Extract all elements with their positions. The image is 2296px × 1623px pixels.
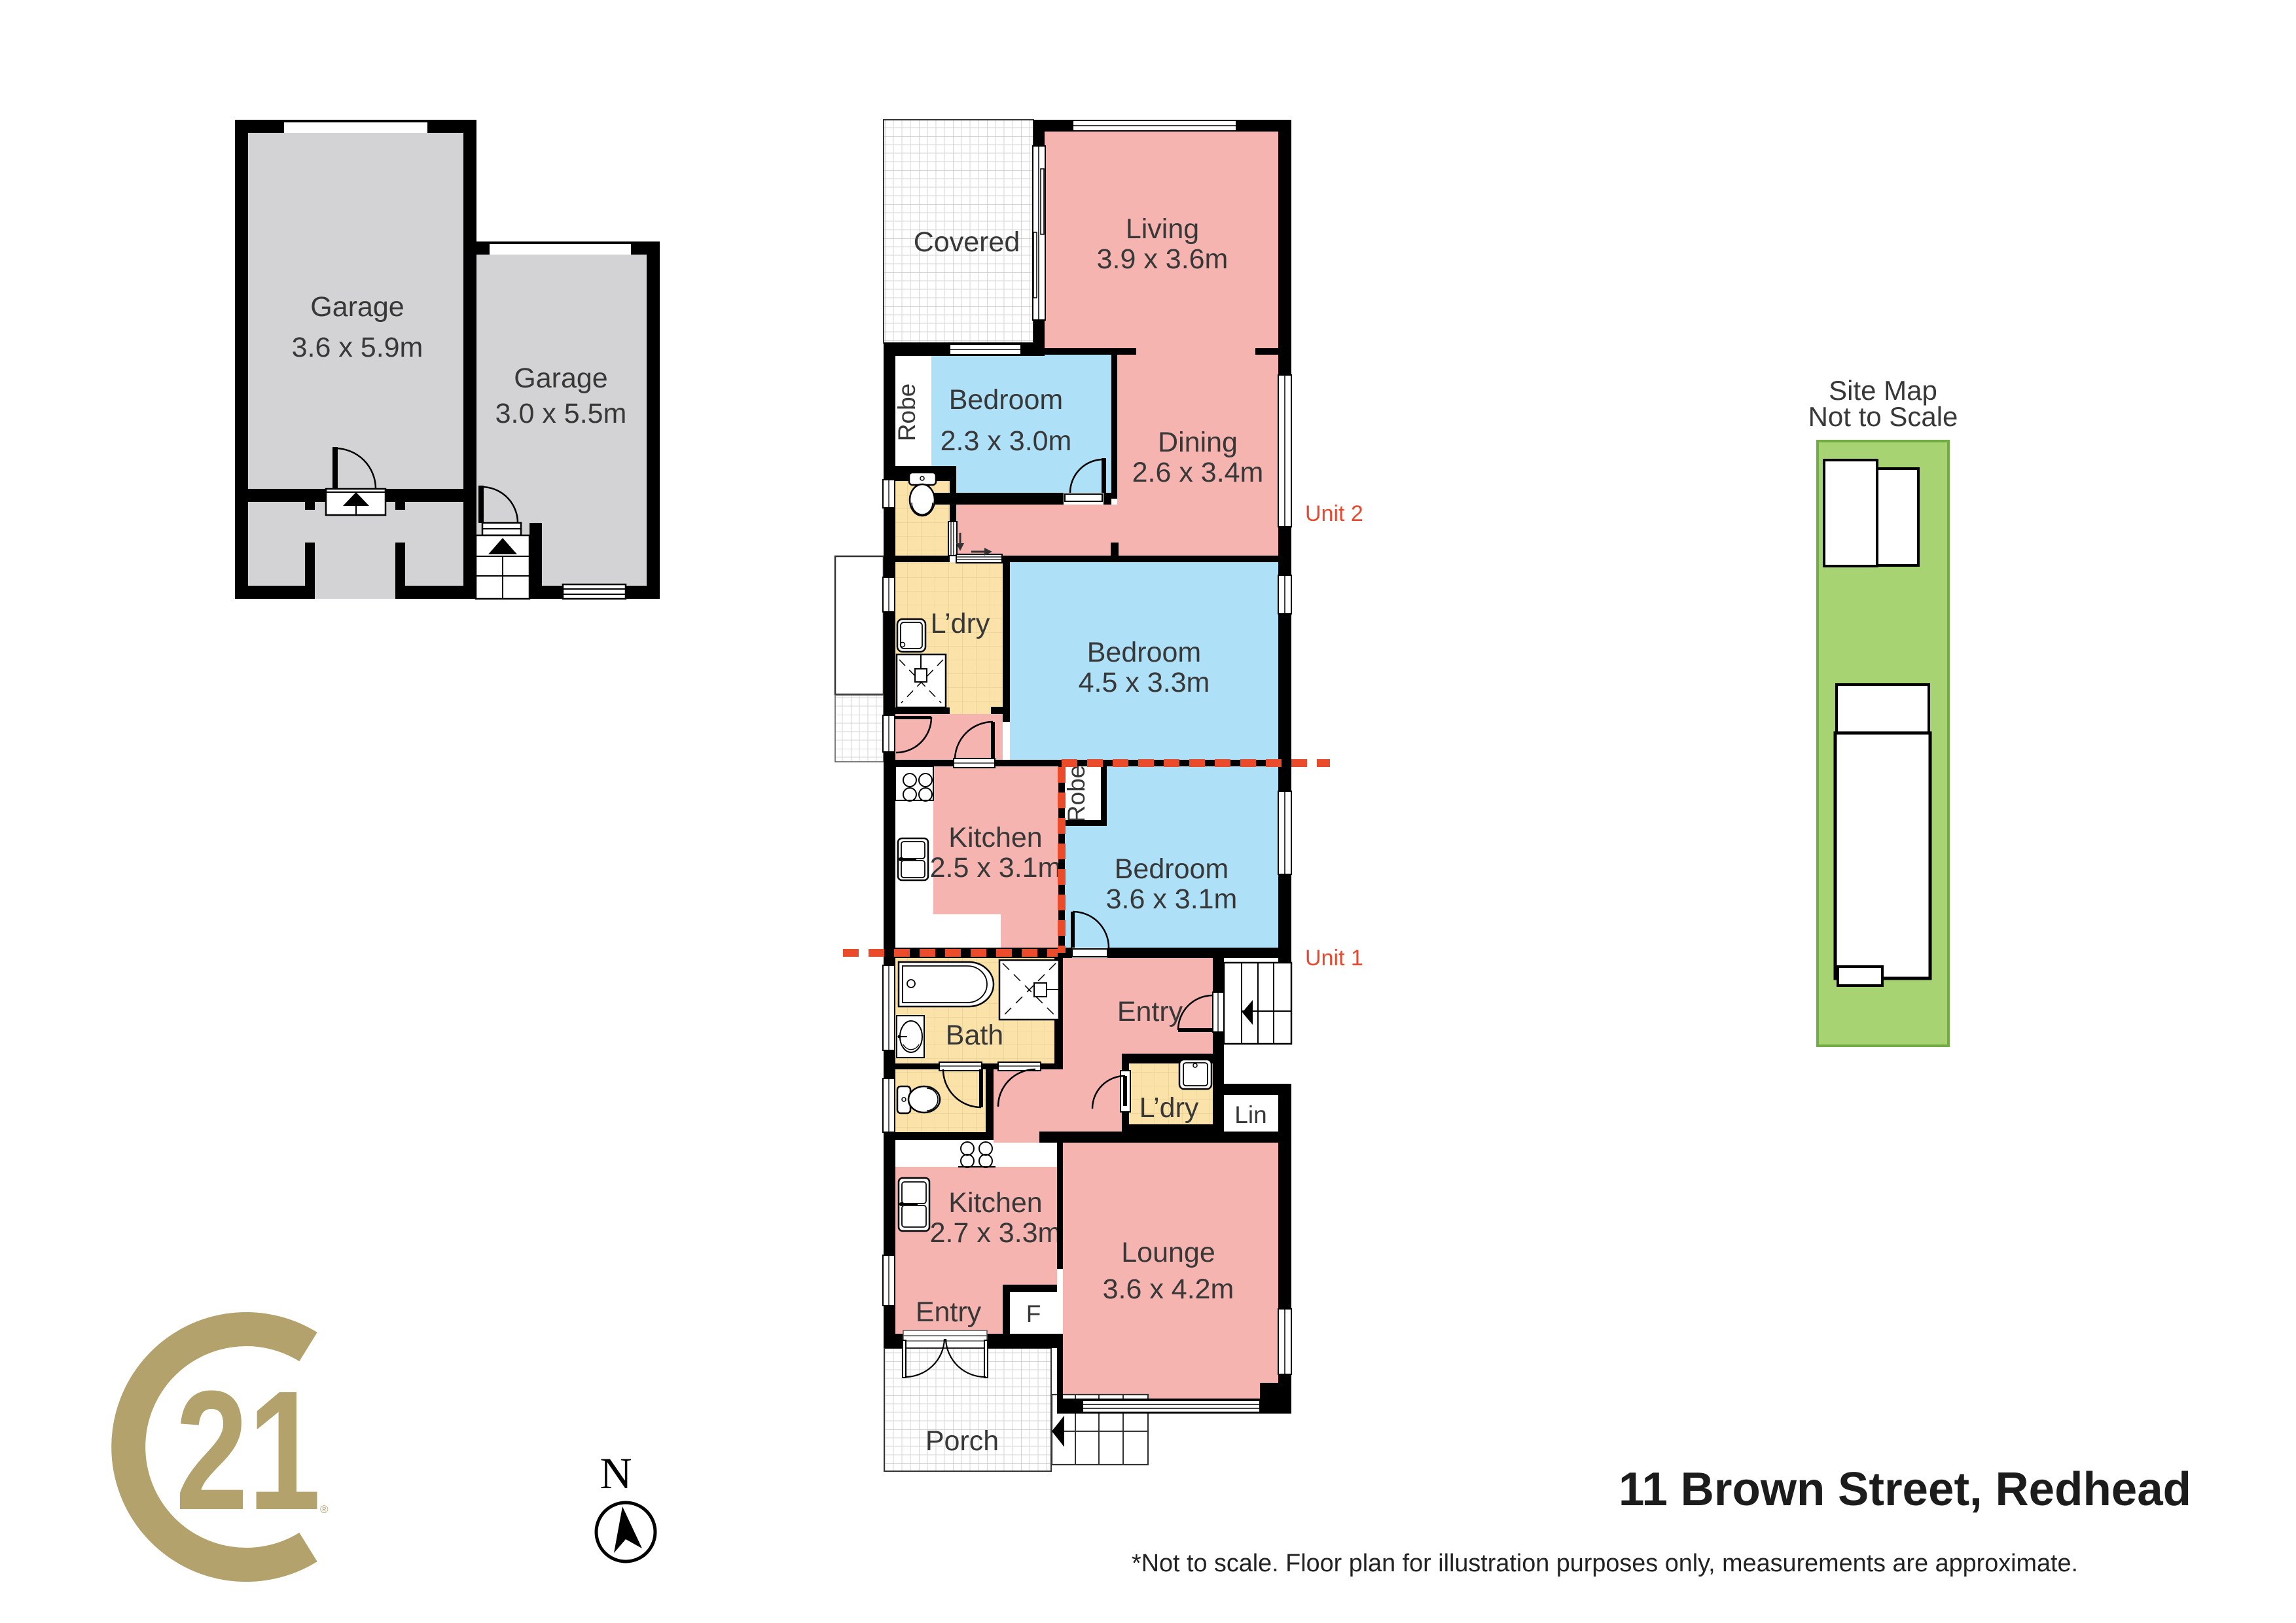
- svg-text:Garage: Garage: [310, 291, 404, 323]
- svg-text:L’dry: L’dry: [1139, 1092, 1199, 1124]
- svg-text:2.5 x 3.1m: 2.5 x 3.1m: [930, 852, 1062, 883]
- svg-text:®: ®: [320, 1503, 329, 1516]
- svg-text:Porch: Porch: [925, 1425, 999, 1457]
- svg-text:21: 21: [175, 1356, 321, 1546]
- svg-text:2.6 x 3.4m: 2.6 x 3.4m: [1132, 457, 1264, 488]
- svg-text:Bedroom: Bedroom: [1115, 853, 1229, 885]
- svg-text:3.6 x 5.9m: 3.6 x 5.9m: [292, 332, 423, 363]
- svg-text:4.5 x 3.3m: 4.5 x 3.3m: [1079, 667, 1210, 698]
- svg-text:Unit 1: Unit 1: [1305, 946, 1363, 971]
- svg-text:3.9 x 3.6m: 3.9 x 3.6m: [1097, 243, 1229, 275]
- svg-text:N: N: [600, 1448, 632, 1498]
- svg-text:Entry: Entry: [916, 1296, 982, 1328]
- svg-text:Bedroom: Bedroom: [949, 384, 1063, 416]
- svg-text:Living: Living: [1126, 213, 1199, 245]
- svg-text:2.3 x 3.0m: 2.3 x 3.0m: [941, 425, 1072, 457]
- svg-text:Bath: Bath: [946, 1020, 1003, 1051]
- svg-text:Robe: Robe: [1063, 765, 1090, 823]
- svg-text:11 Brown Street, Redhead: 11 Brown Street, Redhead: [1619, 1463, 2191, 1516]
- svg-text:Not to Scale: Not to Scale: [1808, 401, 1958, 432]
- svg-text:Covered: Covered: [914, 226, 1020, 258]
- svg-text:Garage: Garage: [514, 363, 607, 394]
- svg-text:Kitchen: Kitchen: [948, 822, 1042, 853]
- svg-text:3.6 x 3.1m: 3.6 x 3.1m: [1106, 883, 1238, 915]
- svg-text:3.0 x 5.5m: 3.0 x 5.5m: [495, 398, 627, 429]
- svg-text:3.6 x 4.2m: 3.6 x 4.2m: [1103, 1274, 1234, 1305]
- svg-text:Bedroom: Bedroom: [1087, 637, 1201, 668]
- svg-text:Robe: Robe: [893, 383, 920, 441]
- svg-text:Dining: Dining: [1158, 427, 1238, 458]
- svg-text:*Not to scale. Floor plan for: *Not to scale. Floor plan for illustrati…: [1132, 1550, 2078, 1577]
- svg-text:2.7 x 3.3m: 2.7 x 3.3m: [930, 1217, 1062, 1249]
- svg-text:Lounge: Lounge: [1121, 1237, 1215, 1268]
- svg-text:Unit 2: Unit 2: [1305, 501, 1363, 526]
- svg-text:Kitchen: Kitchen: [948, 1187, 1042, 1219]
- svg-text:F: F: [1026, 1300, 1041, 1327]
- svg-text:Lin: Lin: [1234, 1101, 1266, 1128]
- svg-text:Entry: Entry: [1117, 996, 1183, 1027]
- svg-text:L’dry: L’dry: [931, 608, 990, 639]
